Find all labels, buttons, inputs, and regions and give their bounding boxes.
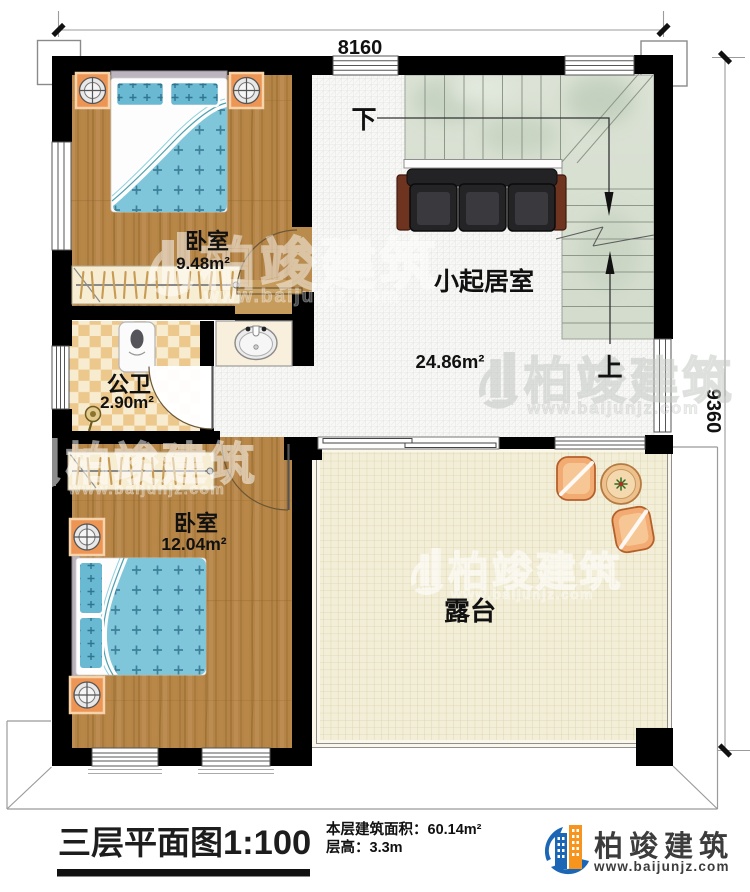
svg-text:露台: 露台 (444, 596, 496, 626)
svg-text:柏竣建筑: 柏竣建筑 (594, 829, 734, 863)
svg-text:www.baijunjz.com: www.baijunjz.com (593, 859, 730, 874)
svg-text:下: 下 (351, 106, 376, 134)
svg-text:本层建筑面积：60.14m²: 本层建筑面积：60.14m² (326, 820, 482, 838)
svg-text:卧室: 卧室 (174, 511, 218, 536)
svg-text:小起居室: 小起居室 (434, 267, 534, 296)
svg-text:卧室: 卧室 (185, 229, 229, 254)
svg-text:上: 上 (597, 354, 622, 382)
svg-text:2.90m²: 2.90m² (100, 393, 154, 412)
svg-text:三层平面图1:100: 三层平面图1:100 (58, 824, 311, 862)
svg-text:层高：3.3m: 层高：3.3m (326, 838, 403, 856)
svg-text:9.48m²: 9.48m² (176, 254, 230, 273)
svg-text:12.04m²: 12.04m² (161, 534, 226, 554)
svg-text:24.86m²: 24.86m² (416, 351, 485, 372)
